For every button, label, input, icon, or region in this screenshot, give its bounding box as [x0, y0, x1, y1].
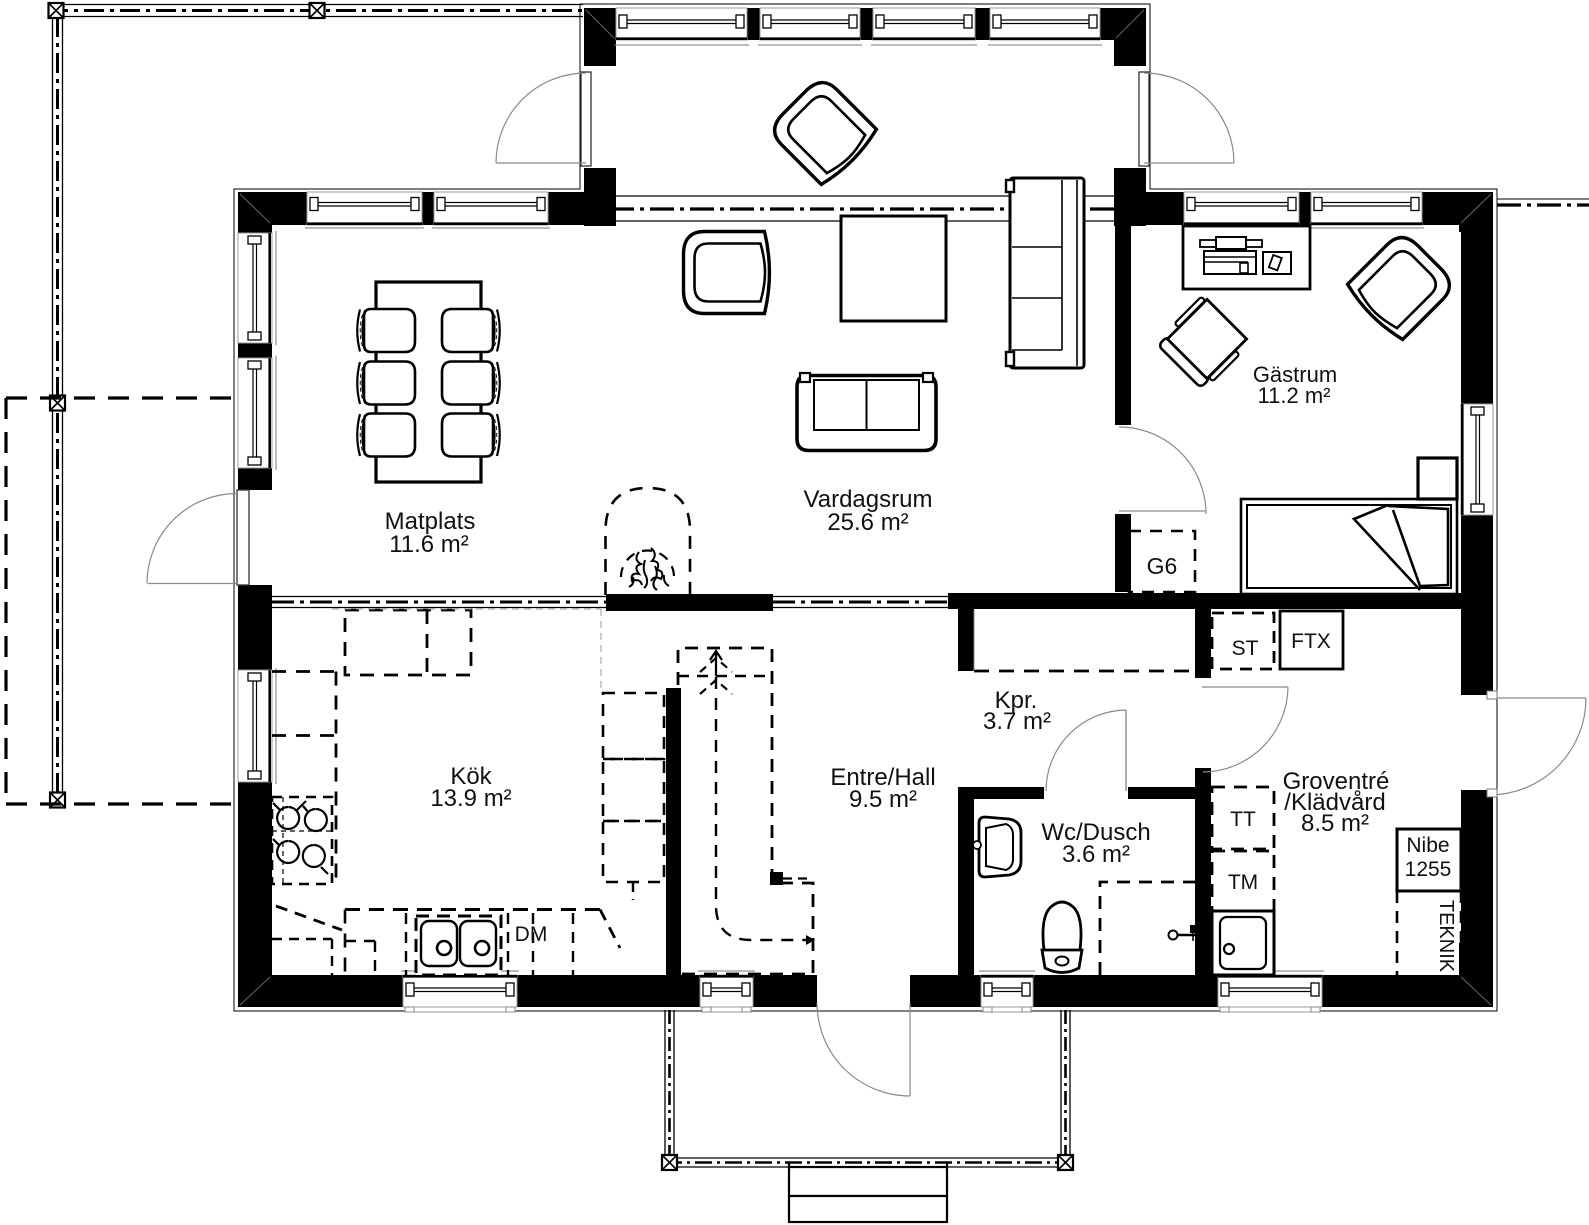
svg-text:11.6 m²: 11.6 m² — [389, 531, 469, 558]
svg-text:9.5 m²: 9.5 m² — [849, 786, 917, 813]
svg-text:FTX: FTX — [1291, 630, 1331, 653]
svg-text:3.7 m²: 3.7 m² — [983, 708, 1051, 735]
svg-text:G6: G6 — [1147, 553, 1178, 579]
svg-text:TEKNIK: TEKNIK — [1435, 900, 1457, 973]
svg-text:3.6 m²: 3.6 m² — [1062, 841, 1130, 868]
svg-text:25.6 m²: 25.6 m² — [827, 509, 908, 536]
svg-text:8.5 m²: 8.5 m² — [1301, 810, 1369, 837]
svg-text:11.2 m²: 11.2 m² — [1258, 383, 1331, 408]
svg-text:TT: TT — [1230, 808, 1256, 831]
svg-text:Nibe: Nibe — [1406, 834, 1449, 857]
svg-text:DM: DM — [515, 923, 548, 946]
svg-text:TM: TM — [1228, 871, 1258, 894]
svg-text:13.9 m²: 13.9 m² — [430, 785, 511, 812]
svg-text:1255: 1255 — [1405, 858, 1452, 881]
svg-text:ST: ST — [1232, 637, 1259, 660]
